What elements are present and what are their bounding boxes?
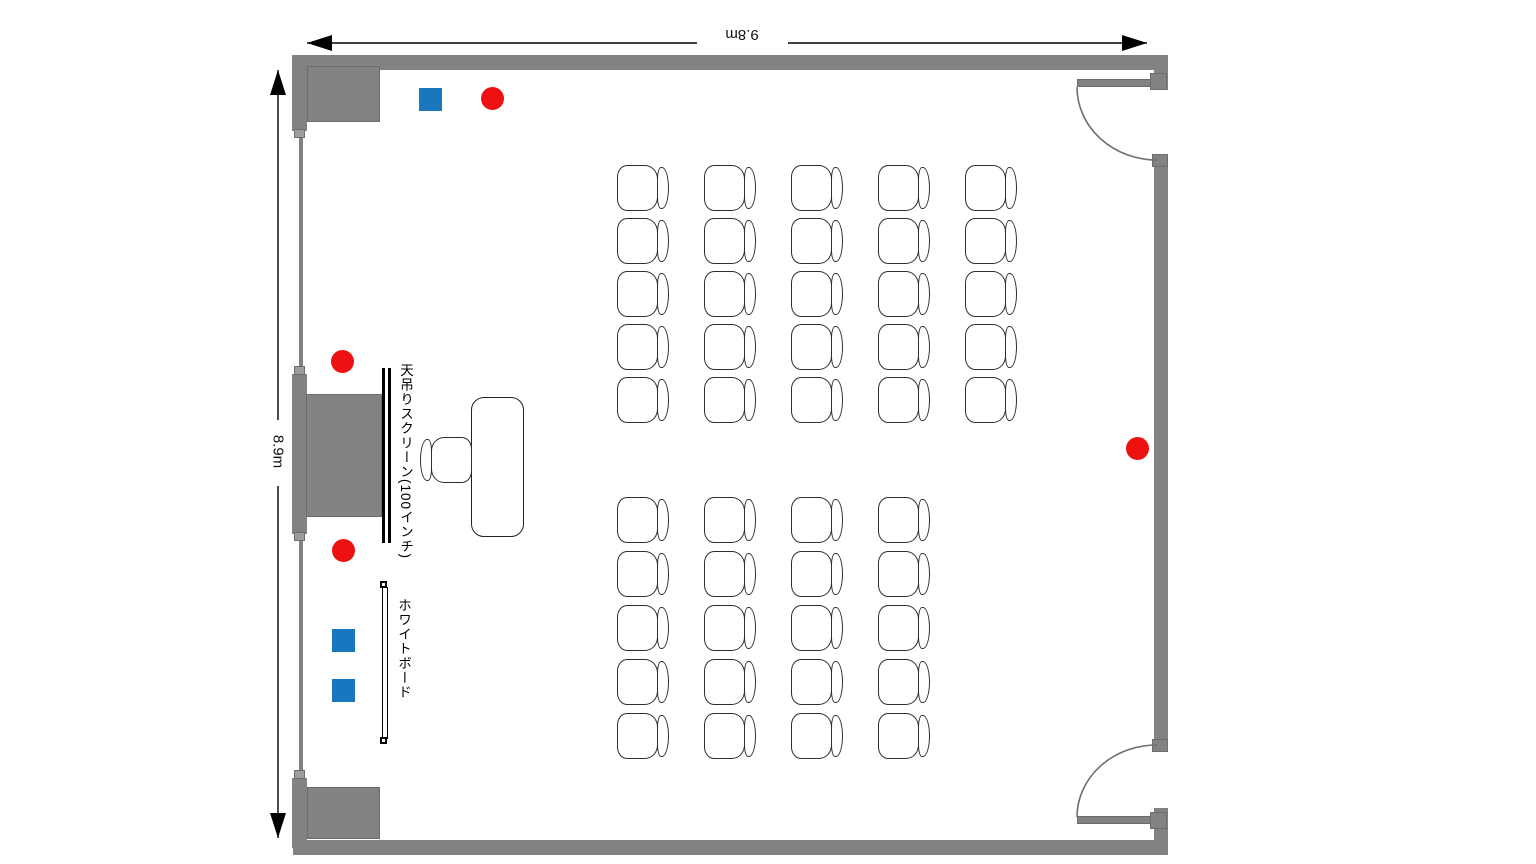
- chair-back: [831, 273, 843, 315]
- chair-back: [657, 273, 669, 315]
- wall-joint: [294, 129, 305, 138]
- chair-seat: [704, 324, 745, 370]
- door-leaf-top: [1077, 79, 1157, 87]
- chair-seat: [617, 324, 658, 370]
- chair-back: [744, 167, 756, 209]
- wall-joint: [294, 770, 305, 779]
- chair-back: [1005, 167, 1017, 209]
- chair-seat: [791, 218, 832, 264]
- chair-seat: [791, 713, 832, 759]
- chair-back: [657, 553, 669, 595]
- pillar-top-left: [307, 66, 380, 122]
- door-hinge-bottom: [1150, 812, 1167, 829]
- chair-front-block: [791, 377, 845, 425]
- chair-rear-block: [704, 713, 758, 761]
- chair-rear-block: [704, 551, 758, 599]
- chair-front-block: [617, 218, 671, 266]
- chair-seat: [965, 377, 1006, 423]
- chair-seat: [791, 497, 832, 543]
- chair-seat: [704, 377, 745, 423]
- chair-seat: [878, 271, 919, 317]
- chair-back: [657, 167, 669, 209]
- chair-back: [657, 379, 669, 421]
- chair-front-block: [965, 165, 1019, 213]
- chair-front-block: [791, 324, 845, 372]
- door-leaf-bottom: [1077, 816, 1157, 824]
- chair-seat: [878, 713, 919, 759]
- dimension-height-label: 8.9m: [270, 429, 287, 475]
- ceiling-screen: [382, 368, 391, 543]
- chair-rear-block: [617, 497, 671, 545]
- chair-back: [918, 607, 930, 649]
- chair-seat: [965, 218, 1006, 264]
- chair-back: [744, 607, 756, 649]
- dimension-width-label: 9.8m: [700, 26, 784, 43]
- chair-front-block: [878, 165, 932, 213]
- chair-seat: [431, 437, 472, 483]
- chair-back: [744, 499, 756, 541]
- chair-seat: [617, 218, 658, 264]
- chair-rear-block: [704, 497, 758, 545]
- chair-front-block: [704, 324, 758, 372]
- chair-rear-block: [878, 551, 932, 599]
- whiteboard: [382, 587, 388, 739]
- chair-back: [918, 167, 930, 209]
- chair-back: [831, 220, 843, 262]
- chair-seat: [878, 497, 919, 543]
- chair-seat: [704, 497, 745, 543]
- chair-back: [918, 715, 930, 757]
- chair-back: [918, 326, 930, 368]
- chair-front-block: [965, 218, 1019, 266]
- red-circle-marker: [331, 350, 354, 373]
- chair-rear-block: [878, 497, 932, 545]
- chair-front-block: [965, 271, 1019, 319]
- chair-back: [744, 273, 756, 315]
- chair-seat: [791, 271, 832, 317]
- chair-back: [744, 379, 756, 421]
- chair-seat: [617, 165, 658, 211]
- chair-front-block: [617, 324, 671, 372]
- chair-front-block: [878, 218, 932, 266]
- chair-rear-block: [878, 659, 932, 707]
- chair-seat: [878, 377, 919, 423]
- chair-back: [918, 220, 930, 262]
- chair-seat: [791, 165, 832, 211]
- chair-seat: [878, 551, 919, 597]
- presenter-chair: [418, 437, 472, 485]
- chair-back: [744, 661, 756, 703]
- chair-back: [831, 607, 843, 649]
- chair-back: [744, 220, 756, 262]
- chair-back: [1005, 220, 1017, 262]
- blue-square-marker: [332, 629, 355, 652]
- chair-rear-block: [617, 605, 671, 653]
- ceiling-screen-label: 天吊りスクリーン(100インチ): [395, 363, 415, 563]
- chair-back: [744, 553, 756, 595]
- whiteboard-label: ホワイトボード: [393, 598, 413, 743]
- chair-front-block: [878, 271, 932, 319]
- chair-rear-block: [791, 713, 845, 761]
- chair-seat: [791, 324, 832, 370]
- chair-seat: [965, 324, 1006, 370]
- chair-back: [831, 167, 843, 209]
- chair-front-block: [791, 218, 845, 266]
- chair-back: [831, 553, 843, 595]
- chair-front-block: [704, 218, 758, 266]
- chair-back: [1005, 326, 1017, 368]
- chair-seat: [878, 218, 919, 264]
- chair-seat: [704, 551, 745, 597]
- chair-seat: [704, 271, 745, 317]
- chair-front-block: [791, 165, 845, 213]
- chair-back: [657, 715, 669, 757]
- chair-rear-block: [704, 605, 758, 653]
- chair-back: [918, 553, 930, 595]
- presenter-desk: [471, 397, 524, 537]
- dimension-and-door-arcs: [0, 0, 1536, 864]
- chair-seat: [878, 324, 919, 370]
- chair-seat: [704, 713, 745, 759]
- chair-front-block: [878, 324, 932, 372]
- chair-rear-block: [878, 605, 932, 653]
- chair-seat: [617, 497, 658, 543]
- blue-square-marker: [332, 679, 355, 702]
- chair-seat: [791, 551, 832, 597]
- chair-front-block: [965, 324, 1019, 372]
- chair-back: [831, 715, 843, 757]
- chair-back: [918, 499, 930, 541]
- chair-seat: [878, 659, 919, 705]
- chair-back: [918, 379, 930, 421]
- chair-seat: [704, 165, 745, 211]
- chair-front-block: [704, 271, 758, 319]
- wall-column-mid-left: [292, 374, 307, 534]
- wall-right: [1154, 160, 1168, 743]
- chair-back: [744, 326, 756, 368]
- whiteboard-end-cap: [380, 581, 387, 588]
- chair-back: [657, 607, 669, 649]
- wall-joint: [294, 366, 305, 375]
- chair-front-block: [878, 377, 932, 425]
- chair-front-block: [965, 377, 1019, 425]
- chair-back: [831, 379, 843, 421]
- chair-seat: [617, 659, 658, 705]
- red-circle-marker: [481, 87, 504, 110]
- chair-front-block: [704, 377, 758, 425]
- pillar-bottom-left: [307, 787, 380, 839]
- door-hinge-top: [1150, 73, 1167, 90]
- chair-rear-block: [791, 551, 845, 599]
- chair-seat: [704, 659, 745, 705]
- chair-seat: [617, 377, 658, 423]
- chair-seat: [617, 551, 658, 597]
- chair-back: [657, 326, 669, 368]
- chair-seat: [965, 165, 1006, 211]
- wall-column-top-left: [292, 55, 307, 131]
- chair-seat: [617, 271, 658, 317]
- chair-rear-block: [791, 497, 845, 545]
- chair-rear-block: [617, 551, 671, 599]
- chair-seat: [791, 605, 832, 651]
- chair-back: [1005, 273, 1017, 315]
- chair-seat: [791, 659, 832, 705]
- chair-rear-block: [791, 659, 845, 707]
- wall-joint: [294, 532, 305, 541]
- chair-back: [1005, 379, 1017, 421]
- chair-back: [744, 715, 756, 757]
- chair-seat: [965, 271, 1006, 317]
- chair-back: [918, 661, 930, 703]
- chair-back: [420, 439, 432, 481]
- chair-rear-block: [791, 605, 845, 653]
- door-jamb-bottom: [1152, 739, 1168, 752]
- chair-seat: [791, 377, 832, 423]
- chair-seat: [704, 605, 745, 651]
- chair-seat: [878, 165, 919, 211]
- chair-back: [831, 499, 843, 541]
- chair-seat: [704, 218, 745, 264]
- chair-back: [831, 661, 843, 703]
- chair-rear-block: [617, 659, 671, 707]
- chair-seat: [617, 713, 658, 759]
- chair-seat: [617, 605, 658, 651]
- floor-plan: 9.8m 8.9m 天吊りスクリーン(100インチ) ホワイトボード: [0, 0, 1536, 864]
- chair-front-block: [617, 271, 671, 319]
- chair-front-block: [791, 271, 845, 319]
- wall-column-bottom-left: [292, 778, 307, 848]
- wall-top: [293, 55, 1168, 70]
- chair-rear-block: [878, 713, 932, 761]
- chair-seat: [878, 605, 919, 651]
- chair-back: [657, 499, 669, 541]
- chair-back: [831, 326, 843, 368]
- chair-rear-block: [704, 659, 758, 707]
- blue-square-marker: [419, 88, 442, 111]
- wall-bottom: [293, 840, 1168, 855]
- red-circle-marker: [332, 539, 355, 562]
- chair-front-block: [704, 165, 758, 213]
- pillar-mid-left: [306, 394, 382, 517]
- red-circle-marker: [1126, 437, 1149, 460]
- door-jamb-top: [1152, 154, 1168, 167]
- chair-back: [918, 273, 930, 315]
- chair-back: [657, 220, 669, 262]
- chair-front-block: [617, 377, 671, 425]
- chair-back: [657, 661, 669, 703]
- chair-front-block: [617, 165, 671, 213]
- chair-rear-block: [617, 713, 671, 761]
- whiteboard-end-cap: [380, 737, 387, 744]
